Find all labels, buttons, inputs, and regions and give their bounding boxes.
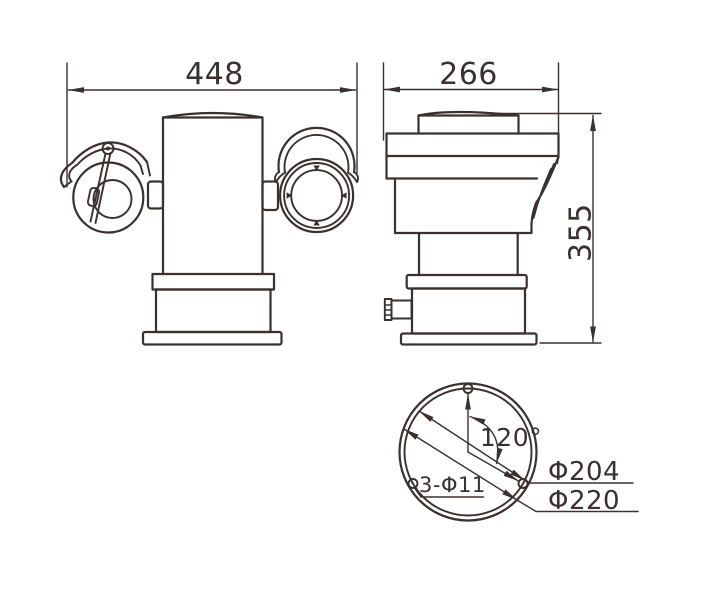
bracket-arm-outer [531,157,558,231]
bolt-circle-label: Φ204 [548,457,620,487]
housing-front-ring [73,163,143,233]
pedestal-flange [407,275,527,289]
base-diameter-label: Φ220 [548,486,620,516]
bezel-ring [284,163,349,228]
dimension-drawing: 448 [0,0,710,592]
base-plate [143,332,282,345]
main-body [395,179,532,234]
left-trunnion-bracket [148,182,163,209]
neck [419,233,518,275]
front-view: 448 [61,57,358,345]
left-camera-housing [61,142,150,232]
column-body [163,118,263,275]
lens-window [291,170,342,221]
bottom-view: 120° Φ204 Φ220 3-Φ11 [400,384,639,521]
cable-gland [392,301,412,319]
mount-holes-callout: 3-Φ11 [415,473,486,497]
right-trunnion-bracket [263,182,279,211]
technical-drawing-page: 448 [0,0,710,592]
front-width-dimension: 448 [67,57,357,187]
pedestal-body [412,289,525,334]
wiper-pivot-dot [106,147,110,151]
mount-holes-label: 3-Φ11 [419,473,486,497]
side-body [385,112,559,345]
side-depth-label: 266 [439,57,498,92]
pedestal-flange [153,274,275,290]
upper-band [387,134,559,157]
side-depth-dimension: 266 [384,57,559,140]
pedestal-body [156,290,271,333]
side-height-label: 355 [564,203,599,262]
angle-label: 120° [480,423,542,452]
top-cap [419,116,519,134]
side-view: 266 355 [384,57,602,345]
camera-column [143,113,282,345]
lower-band [387,156,559,179]
base-plate [401,334,537,345]
side-height-dimension: 355 [493,114,601,344]
cable-gland-ribs [385,305,392,315]
right-camera-housing [275,128,358,232]
front-width-label: 448 [185,57,244,92]
